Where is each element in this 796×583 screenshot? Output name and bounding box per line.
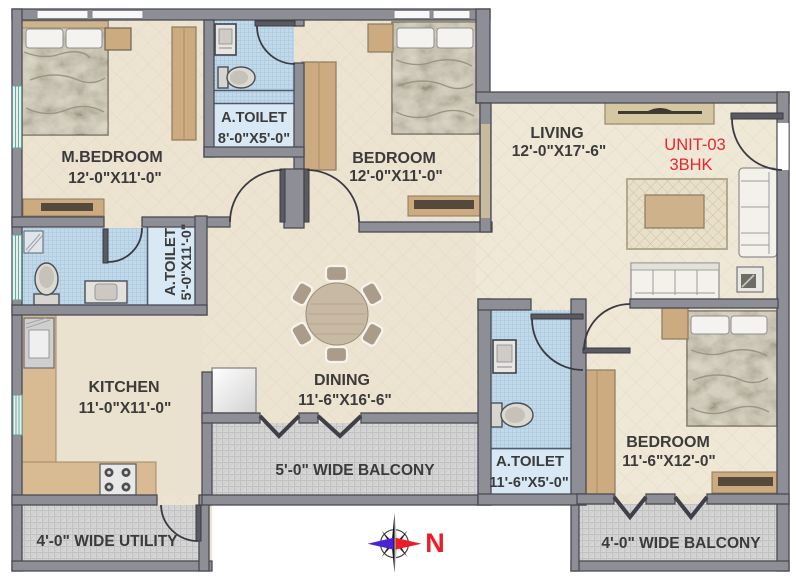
svg-text:A.TOILET: A.TOILET [221, 110, 287, 126]
svg-text:UNIT-03: UNIT-03 [664, 136, 725, 154]
svg-text:4'-0" WIDE UTILITY: 4'-0" WIDE UTILITY [36, 533, 178, 550]
svg-text:5'-0"X11'-0": 5'-0"X11'-0" [178, 224, 194, 301]
svg-text:LIVING: LIVING [530, 125, 583, 142]
svg-text:11'-0"X11'-0": 11'-0"X11'-0" [79, 400, 172, 417]
svg-text:M.BEDROOM: M.BEDROOM [61, 149, 162, 166]
svg-text:N: N [425, 528, 445, 558]
svg-text:12'-0"X11'-0": 12'-0"X11'-0" [68, 170, 162, 187]
svg-text:BEDROOM: BEDROOM [626, 434, 710, 451]
svg-text:3BHK: 3BHK [669, 156, 712, 174]
svg-text:A.TOILET: A.TOILET [496, 453, 564, 470]
svg-text:A.TOILET: A.TOILET [162, 228, 179, 296]
svg-text:8'-0"X5'-0": 8'-0"X5'-0" [218, 131, 290, 147]
svg-text:DINING: DINING [314, 372, 370, 389]
svg-text:12'-0"X11'-0": 12'-0"X11'-0" [349, 168, 443, 185]
svg-text:11'-6"X16'-6": 11'-6"X16'-6" [298, 392, 392, 409]
svg-text:11'-6"X5'-0": 11'-6"X5'-0" [489, 475, 569, 491]
svg-text:KITCHEN: KITCHEN [88, 379, 159, 396]
svg-text:11'-6"X12'-0": 11'-6"X12'-0" [622, 453, 716, 470]
svg-text:12'-0"X17'-6": 12'-0"X17'-6" [512, 143, 606, 160]
svg-text:BEDROOM: BEDROOM [352, 150, 436, 167]
svg-text:4'-0" WIDE BALCONY: 4'-0" WIDE BALCONY [601, 535, 761, 552]
svg-text:5'-0" WIDE BALCONY: 5'-0" WIDE BALCONY [275, 462, 435, 479]
